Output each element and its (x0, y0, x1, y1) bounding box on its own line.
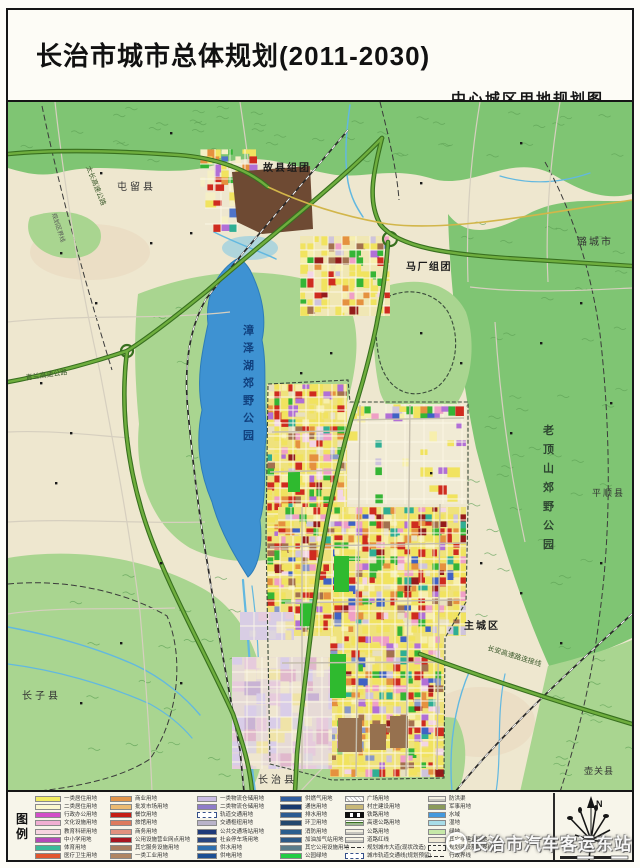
legend-item: 二类居住用地 (35, 804, 97, 812)
legend-swatch (110, 820, 132, 826)
planning-map-page: 长治市城市总体规划(2011-2030) 中心城区用地规划图 (0, 0, 640, 868)
scale-bar (560, 856, 628, 859)
legend-label: 水域 (449, 812, 460, 819)
legend-swatch (345, 812, 364, 818)
legend-swatch (428, 812, 446, 818)
legend-swatch (428, 820, 446, 826)
legend-item: 一类工业用地 (110, 853, 168, 861)
bus-station-logo-icon (446, 832, 467, 853)
legend-swatch (35, 861, 61, 862)
legend-label: 公用设施营业网点用地 (135, 837, 190, 844)
legend-swatch (428, 853, 446, 859)
legend-item: 供燃气用地 (280, 796, 333, 804)
legend-swatch (280, 861, 302, 862)
legend-label: 一类居住用地 (64, 796, 97, 803)
label-huguan-county: 壶关县 (584, 765, 614, 776)
legend-label: 供电用地 (220, 853, 242, 860)
legend-swatch (110, 845, 132, 851)
city-park (334, 556, 349, 592)
legend-item: 文化设施用地 (35, 820, 97, 828)
legend-swatch (197, 812, 217, 818)
label-guxian-cluster: 故县组团 (263, 161, 311, 174)
legend-swatch (197, 837, 217, 843)
city-park (330, 654, 346, 698)
legend-swatch (197, 845, 217, 851)
legend-item: 环卫用地 (280, 820, 327, 828)
legend-swatch (345, 861, 364, 862)
legend-swatch (345, 853, 364, 859)
legend-item: 一类居住用地 (35, 796, 97, 804)
legend-item: 军事用地 (428, 804, 471, 812)
legend-item: 交通枢纽用地 (197, 820, 253, 828)
legend-label: 供水用地 (220, 845, 242, 852)
north-arrow (587, 796, 595, 808)
legend-item: 社会福利用地 (35, 861, 97, 862)
legend-item: 旅馆用地 (110, 820, 157, 828)
legend-label: 教育科研用地 (64, 829, 97, 836)
legend-item: 供电用地 (197, 853, 242, 861)
legend-label: 规划城市大道(现状改造) (367, 845, 426, 852)
industry-block (390, 716, 408, 748)
legend-swatch (197, 804, 217, 810)
legend-swatch (428, 804, 446, 810)
legend-label: 高速公路用地 (367, 820, 400, 827)
map-canvas: 故县组团屯留县马厂组团潞城市漳泽湖郊野公园老顶山郊野公园平顺县主城区长子县长治县… (8, 100, 632, 792)
watermark-text: 长治市汽车客运东站 (470, 830, 632, 855)
industry-block (338, 718, 362, 752)
legend-label: 商务用地 (135, 829, 157, 836)
legend-swatch (428, 837, 446, 843)
legend-label: 消防用地 (305, 829, 327, 836)
label-lucheng-city: 潞城市 (577, 235, 613, 248)
legend-swatch (35, 820, 61, 826)
legend-label: 其它服务设施用地 (135, 845, 179, 852)
legend-swatch (280, 812, 302, 818)
legend-swatch (35, 853, 61, 859)
legend-item: 供水用地 (197, 845, 242, 853)
legend-title: 图 例 (16, 812, 28, 842)
legend-swatch (35, 837, 61, 843)
legend-label: 二类工业用地 (135, 861, 168, 862)
legend-label: 通信用地 (305, 804, 327, 811)
legend-label: 公共交通场站用地 (220, 829, 264, 836)
legend-label: 加油加气站用地 (305, 837, 344, 844)
land-use-map: 故县组团屯留县马厂组团潞城市漳泽湖郊野公园老顶山郊野公园平顺县主城区长子县长治县… (8, 102, 632, 792)
legend-label: 商业用地 (135, 796, 157, 803)
legend-item: 商业用地 (110, 796, 157, 804)
legend-label: 城市轨道交通线(规划预留) (367, 853, 431, 860)
legend-item: 广场用地 (345, 796, 389, 804)
legend-item: 批发市场用地 (110, 804, 168, 812)
legend-swatch (35, 812, 61, 818)
legend-label: 批发市场用地 (135, 804, 168, 811)
legend-label: 一类物流仓储用地 (220, 796, 264, 803)
legend-swatch (110, 853, 132, 859)
legend-label: 排水用地 (305, 812, 327, 819)
legend-label: 广场用地 (367, 796, 389, 803)
title-block: 长治市城市总体规划(2011-2030) 中心城区用地规划图 (8, 10, 632, 100)
legend-swatch (35, 845, 61, 851)
legend-swatch (280, 796, 302, 802)
legend-label: 远景道路 (367, 861, 389, 862)
legend-label: 军事用地 (449, 804, 471, 811)
legend-label: 轨道交通用地 (220, 812, 253, 819)
legend-swatch (197, 861, 217, 862)
legend-label: 供燃气用地 (305, 796, 333, 803)
legend-label: 防洪渠 (449, 796, 466, 803)
legend-label: 防护绿地 (305, 861, 327, 862)
legend-swatch (345, 820, 364, 826)
legend-label: 社会福利用地 (64, 861, 97, 862)
legend-item: 加油加气站用地 (280, 837, 344, 845)
legend-label: 文化设施用地 (64, 820, 97, 827)
legend-swatch (280, 853, 302, 859)
legend-swatch (280, 820, 302, 826)
legend-swatch (35, 829, 61, 835)
legend-label: 公路用地 (367, 829, 389, 836)
legend-item: 公园绿地 (280, 853, 327, 861)
legend-label: 医疗卫生用地 (64, 853, 97, 860)
legend-swatch (345, 837, 364, 843)
legend-swatch (110, 861, 132, 862)
legend-swatch (197, 853, 217, 859)
legend-swatch (345, 796, 364, 802)
legend-item: 中小学用地 (35, 837, 92, 845)
legend-item: 城市轨道交通线(规划预留) (345, 853, 431, 861)
legend-label: 一类工业用地 (135, 853, 168, 860)
legend-label: 供热用地 (220, 861, 242, 862)
page-title: 长治市城市总体规划(2011-2030) (36, 36, 430, 73)
legend-label: 交通枢纽用地 (220, 820, 253, 827)
legend-label: 旅馆用地 (135, 820, 157, 827)
watermark: 长治市汽车客运东站 (446, 830, 632, 855)
legend-swatch (428, 796, 446, 802)
legend-swatch (110, 812, 132, 818)
legend-swatch (428, 845, 446, 851)
legend-label: 体育用地 (64, 845, 86, 852)
legend-bar: 图 例 一类居住用地二类居住用地行政办公用地文化设施用地教育科研用地中小学用地体… (8, 792, 632, 862)
north-label: N (596, 799, 603, 809)
legend-label: 生态控制线 (449, 861, 477, 862)
legend-item: 体育用地 (35, 845, 86, 853)
industry-block (370, 724, 386, 750)
legend-item: 高速公路用地 (345, 820, 400, 828)
legend-item: 其它公用设施用地 (280, 845, 349, 853)
legend-item: 生态控制线 (428, 861, 477, 862)
legend-swatch (280, 845, 302, 851)
legend-swatch (110, 804, 132, 810)
legend-swatch (110, 837, 132, 843)
legend-label: 二类物流仓储用地 (220, 804, 264, 811)
legend-item: 二类工业用地 (110, 861, 168, 862)
legend-label: 公园绿地 (305, 853, 327, 860)
legend-swatch (428, 861, 446, 862)
legend-item: 一类物流仓储用地 (197, 796, 264, 804)
legend-label: 中小学用地 (64, 837, 92, 844)
legend-swatch (345, 829, 364, 835)
legend-swatch (110, 796, 132, 802)
legend-swatch (345, 804, 364, 810)
legend-swatch (280, 829, 302, 835)
legend-item: 公共交通场站用地 (197, 829, 264, 837)
legend-swatch (428, 829, 446, 835)
legend-label: 行政办公用地 (64, 812, 97, 819)
legend-swatch (197, 820, 217, 826)
legend-item: 湿地 (428, 820, 460, 828)
legend-item: 远景道路 (345, 861, 389, 862)
label-tunliu-county: 屯留县 (117, 180, 156, 193)
legend-swatch (197, 796, 217, 802)
legend-label: 道路红线 (367, 837, 389, 844)
city-park (288, 472, 300, 492)
legend-item: 防护绿地 (280, 861, 327, 862)
legend-item: 消防用地 (280, 829, 327, 837)
legend-label: 社会停车场用地 (220, 837, 259, 844)
legend-item: 公用设施营业网点用地 (110, 837, 190, 845)
legend-label: 铁路用地 (367, 812, 389, 819)
legend-label: 餐饮用地 (135, 812, 157, 819)
legend-item: 公路用地 (345, 829, 389, 837)
label-machang-cluster: 马厂组团 (406, 260, 452, 273)
legend-item: 供热用地 (197, 861, 242, 862)
legend-label: 其它公用设施用地 (305, 845, 349, 852)
legend-item: 通信用地 (280, 804, 327, 812)
legend-item: 社会停车场用地 (197, 837, 259, 845)
label-changzhi-county: 长治县 (258, 773, 297, 786)
legend-swatch (35, 804, 61, 810)
legend-item: 防洪渠 (428, 796, 466, 804)
legend-swatch (280, 837, 302, 843)
legend-swatch (35, 796, 61, 802)
legend-item: 教育科研用地 (35, 829, 97, 837)
label-pingshun-county: 平顺县 (592, 488, 625, 498)
legend-swatch (197, 829, 217, 835)
legend-label: 湿地 (449, 820, 460, 827)
legend-label: 二类居住用地 (64, 804, 97, 811)
legend-label: 环卫用地 (305, 820, 327, 827)
legend-item: 医疗卫生用地 (35, 853, 97, 861)
legend-swatch (280, 804, 302, 810)
legend-item: 二类物流仓储用地 (197, 804, 264, 812)
legend-swatch (110, 829, 132, 835)
legend-item: 商务用地 (110, 829, 157, 837)
label-zhangzi-county: 长子县 (22, 690, 61, 702)
legend-label: 村庄建设用地 (367, 804, 400, 811)
label-main-city: 主城区 (464, 619, 500, 632)
legend-swatch (345, 845, 364, 851)
legend-item: 其它服务设施用地 (110, 845, 179, 853)
legend-item: 村庄建设用地 (345, 804, 400, 812)
legend-item: 道路红线 (345, 837, 389, 845)
legend-item: 规划城市大道(现状改造) (345, 845, 426, 853)
